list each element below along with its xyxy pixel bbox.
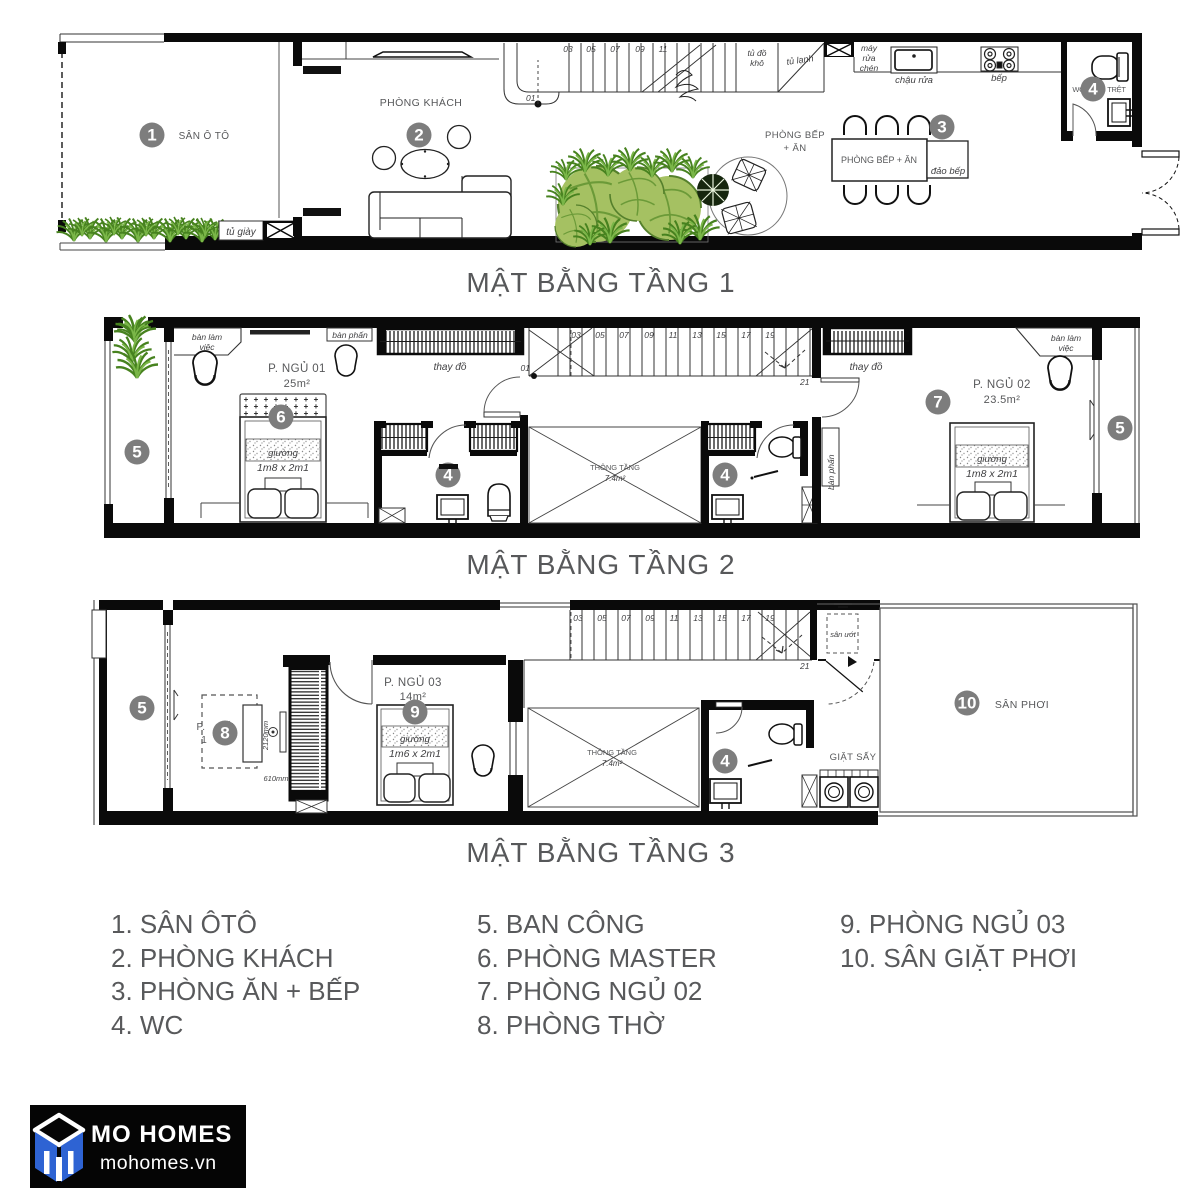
svg-text:1m6 x 2m1: 1m6 x 2m1 (389, 748, 441, 760)
svg-text:1: 1 (147, 126, 156, 145)
svg-text:13: 13 (693, 613, 703, 623)
svg-text:10: 10 (958, 694, 977, 713)
svg-text:7.4m²: 7.4m² (602, 759, 623, 768)
svg-text:7.4m²: 7.4m² (605, 474, 626, 483)
svg-text:PHÒNG BẾP + ĂN: PHÒNG BẾP + ĂN (841, 155, 917, 165)
svg-text:05: 05 (597, 613, 607, 623)
svg-text:việc: việc (1058, 343, 1074, 353)
svg-text:7: 7 (933, 393, 942, 412)
svg-text:khô: khô (750, 58, 764, 68)
svg-text:19: 19 (765, 613, 775, 623)
svg-text:bàn làm: bàn làm (192, 332, 222, 342)
svg-text:+ ĂN: + ĂN (784, 143, 807, 154)
svg-text:17: 17 (741, 613, 751, 623)
svg-text:7. PHÒNG NGỦ 02: 7. PHÒNG NGỦ 02 (477, 975, 702, 1006)
svg-text:07: 07 (621, 613, 631, 623)
svg-text:9: 9 (410, 703, 419, 722)
svg-text:PHÒNG KHÁCH: PHÒNG KHÁCH (380, 96, 463, 109)
svg-text:SÂN PHƠI: SÂN PHƠI (995, 698, 1049, 711)
svg-text:21: 21 (799, 661, 810, 671)
svg-text:17: 17 (741, 330, 751, 340)
svg-text:2120mm: 2120mm (261, 721, 270, 751)
svg-text:11: 11 (669, 330, 678, 340)
svg-text:tủ giày: tủ giày (226, 226, 256, 238)
svg-text:09: 09 (635, 44, 645, 54)
svg-text:5: 5 (132, 443, 141, 462)
svg-text:01: 01 (521, 363, 531, 373)
svg-text:19: 19 (765, 330, 775, 340)
svg-text:6: 6 (276, 408, 285, 427)
svg-text:25m²: 25m² (284, 378, 311, 390)
svg-text:MẬT BẰNG TẦNG 2: MẬT BẰNG TẦNG 2 (466, 549, 735, 580)
svg-text:mohomes.vn: mohomes.vn (100, 1152, 217, 1174)
svg-text:3. PHÒNG ĂN + BẾP: 3. PHÒNG ĂN + BẾP (111, 976, 360, 1006)
svg-text:P. NGỦ 01: P. NGỦ 01 (268, 362, 326, 375)
svg-text:6. PHÒNG MASTER: 6. PHÒNG MASTER (477, 943, 717, 973)
svg-text:tủ lạnh: tủ lạnh (786, 53, 814, 67)
svg-text:8. PHÒNG THỜ: 8. PHÒNG THỜ (477, 1010, 665, 1040)
svg-text:03: 03 (573, 613, 583, 623)
svg-text:07: 07 (619, 330, 629, 340)
svg-text:1m8 x 2m1: 1m8 x 2m1 (257, 462, 309, 474)
svg-text:11: 11 (659, 44, 668, 54)
svg-text:máy: máy (861, 43, 878, 53)
svg-text:tủ đồ: tủ đồ (748, 48, 767, 58)
svg-text:SÂN Ô TÔ: SÂN Ô TÔ (179, 129, 230, 142)
svg-text:05: 05 (586, 44, 596, 54)
svg-text:4: 4 (1088, 80, 1098, 99)
svg-text:5. BAN CÔNG: 5. BAN CÔNG (477, 909, 645, 939)
svg-text:10. SÂN GIẶT PHƠI: 10. SÂN GIẶT PHƠI (840, 943, 1077, 973)
svg-text:rửa: rửa (863, 53, 876, 63)
svg-text:MẬT BẰNG TẦNG 3: MẬT BẰNG TẦNG 3 (466, 837, 735, 868)
svg-text:9. PHÒNG NGỦ 03: 9. PHÒNG NGỦ 03 (840, 908, 1065, 939)
svg-text:thay đồ: thay đồ (850, 361, 883, 373)
svg-text:MẬT BẰNG TẦNG 1: MẬT BẰNG TẦNG 1 (466, 267, 735, 298)
svg-text:P. NGỦ 02: P. NGỦ 02 (973, 378, 1031, 391)
svg-text:4. WC: 4. WC (111, 1010, 183, 1040)
svg-text:thay đồ: thay đồ (434, 361, 467, 373)
svg-text:bàn phấn: bàn phấn (826, 454, 836, 490)
svg-text:bàn làm: bàn làm (1051, 333, 1081, 343)
svg-text:1m8 x 2m1: 1m8 x 2m1 (966, 468, 1018, 480)
svg-text:GIẶT SẤY: GIẶT SẤY (830, 752, 877, 763)
svg-text:01: 01 (526, 93, 536, 103)
svg-text:P. NGỦ 03: P. NGỦ 03 (384, 676, 442, 689)
svg-text:chậu rửa: chậu rửa (895, 75, 933, 86)
svg-text:05: 05 (595, 330, 605, 340)
svg-text:2. PHÒNG KHÁCH: 2. PHÒNG KHÁCH (111, 943, 334, 973)
svg-text:8: 8 (220, 724, 229, 743)
svg-text:THÔNG TẦNG: THÔNG TẦNG (590, 462, 640, 472)
svg-text:5: 5 (1115, 419, 1124, 438)
svg-text:03: 03 (563, 44, 573, 54)
svg-text:5: 5 (137, 699, 146, 718)
svg-text:MO HOMES: MO HOMES (91, 1121, 232, 1148)
svg-text:610mm: 610mm (263, 774, 288, 783)
svg-text:4: 4 (720, 752, 730, 771)
svg-text:07: 07 (610, 44, 620, 54)
svg-text:bếp: bếp (991, 73, 1007, 84)
svg-text:09: 09 (644, 330, 654, 340)
svg-text:11: 11 (670, 613, 679, 623)
svg-text:chén: chén (860, 63, 879, 73)
svg-text:4: 4 (720, 466, 730, 485)
svg-text:09: 09 (645, 613, 655, 623)
svg-text:THÔNG TẦNG: THÔNG TẦNG (587, 747, 637, 757)
svg-text:2: 2 (414, 126, 423, 145)
svg-text:15: 15 (716, 330, 726, 340)
svg-text:13: 13 (692, 330, 702, 340)
svg-text:sân ướt: sân ướt (830, 630, 856, 639)
svg-text:23.5m²: 23.5m² (984, 394, 1021, 406)
svg-text:21: 21 (799, 377, 810, 387)
svg-text:03: 03 (571, 330, 581, 340)
svg-text:PHÒNG BẾP: PHÒNG BẾP (765, 130, 825, 141)
svg-text:giường: giường (400, 734, 430, 745)
svg-text:đảo bếp: đảo bếp (931, 166, 965, 177)
svg-text:3: 3 (937, 118, 946, 137)
svg-text:1. SÂN ÔTÔ: 1. SÂN ÔTÔ (111, 909, 257, 939)
svg-text:giường: giường (977, 454, 1007, 465)
svg-text:bàn phấn: bàn phấn (332, 330, 368, 340)
svg-text:giường: giường (268, 448, 298, 459)
svg-text:15: 15 (717, 613, 727, 623)
